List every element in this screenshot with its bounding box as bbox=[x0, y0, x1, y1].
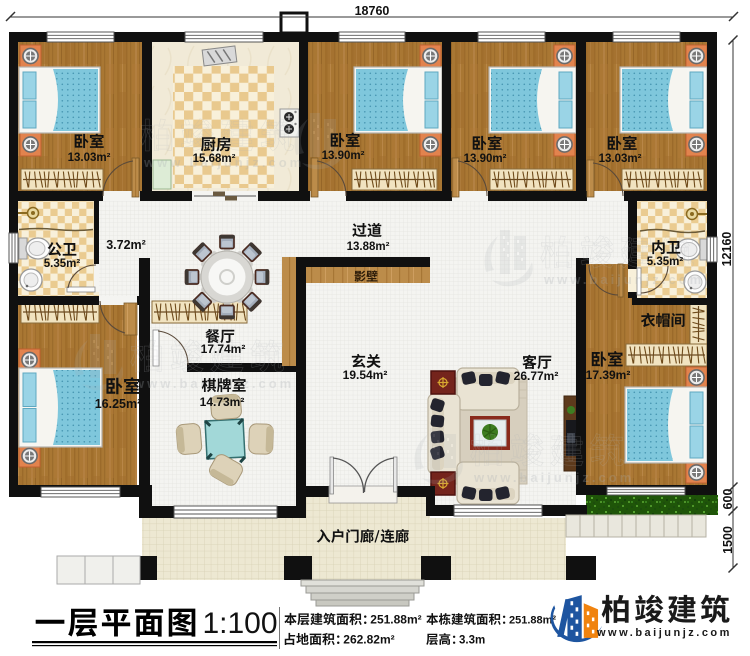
svg-text:13.90m²: 13.90m² bbox=[464, 153, 507, 165]
svg-text:13.88m²: 13.88m² bbox=[347, 241, 390, 253]
svg-text:12160: 12160 bbox=[720, 232, 734, 267]
svg-text:13.03m²: 13.03m² bbox=[68, 152, 111, 164]
svg-text:13.90m²: 13.90m² bbox=[322, 150, 365, 162]
svg-text:1500: 1500 bbox=[721, 526, 735, 554]
svg-text:www.baijunjz.com: www.baijunjz.com bbox=[543, 272, 704, 287]
svg-text:5.35m²: 5.35m² bbox=[44, 258, 81, 270]
svg-text:26.77m²: 26.77m² bbox=[514, 369, 559, 383]
svg-text:5.35m²: 5.35m² bbox=[647, 256, 684, 268]
svg-text:3.3m: 3.3m bbox=[459, 635, 485, 647]
svg-text:18760: 18760 bbox=[355, 4, 390, 18]
svg-text:13.03m²: 13.03m² bbox=[599, 153, 642, 165]
svg-text:262.82m²: 262.82m² bbox=[343, 633, 394, 647]
svg-text:17.39m²: 17.39m² bbox=[586, 368, 631, 382]
svg-text:251.88m²: 251.88m² bbox=[509, 615, 556, 627]
svg-text:www.baijunjz.com: www.baijunjz.com bbox=[596, 627, 732, 639]
svg-text:17.74m²: 17.74m² bbox=[201, 342, 246, 356]
svg-text:251.88m²: 251.88m² bbox=[370, 613, 421, 627]
svg-text:16.25m²: 16.25m² bbox=[95, 397, 142, 411]
svg-text:600: 600 bbox=[721, 489, 735, 510]
svg-text:19.54m²: 19.54m² bbox=[343, 368, 388, 382]
svg-text:3.72m²: 3.72m² bbox=[106, 238, 146, 252]
svg-text:1:100: 1:100 bbox=[202, 607, 277, 640]
svg-text:www.baijunjz.com: www.baijunjz.com bbox=[473, 470, 634, 485]
svg-text:14.73m²: 14.73m² bbox=[200, 395, 245, 409]
svg-text:15.68m²: 15.68m² bbox=[193, 153, 236, 165]
